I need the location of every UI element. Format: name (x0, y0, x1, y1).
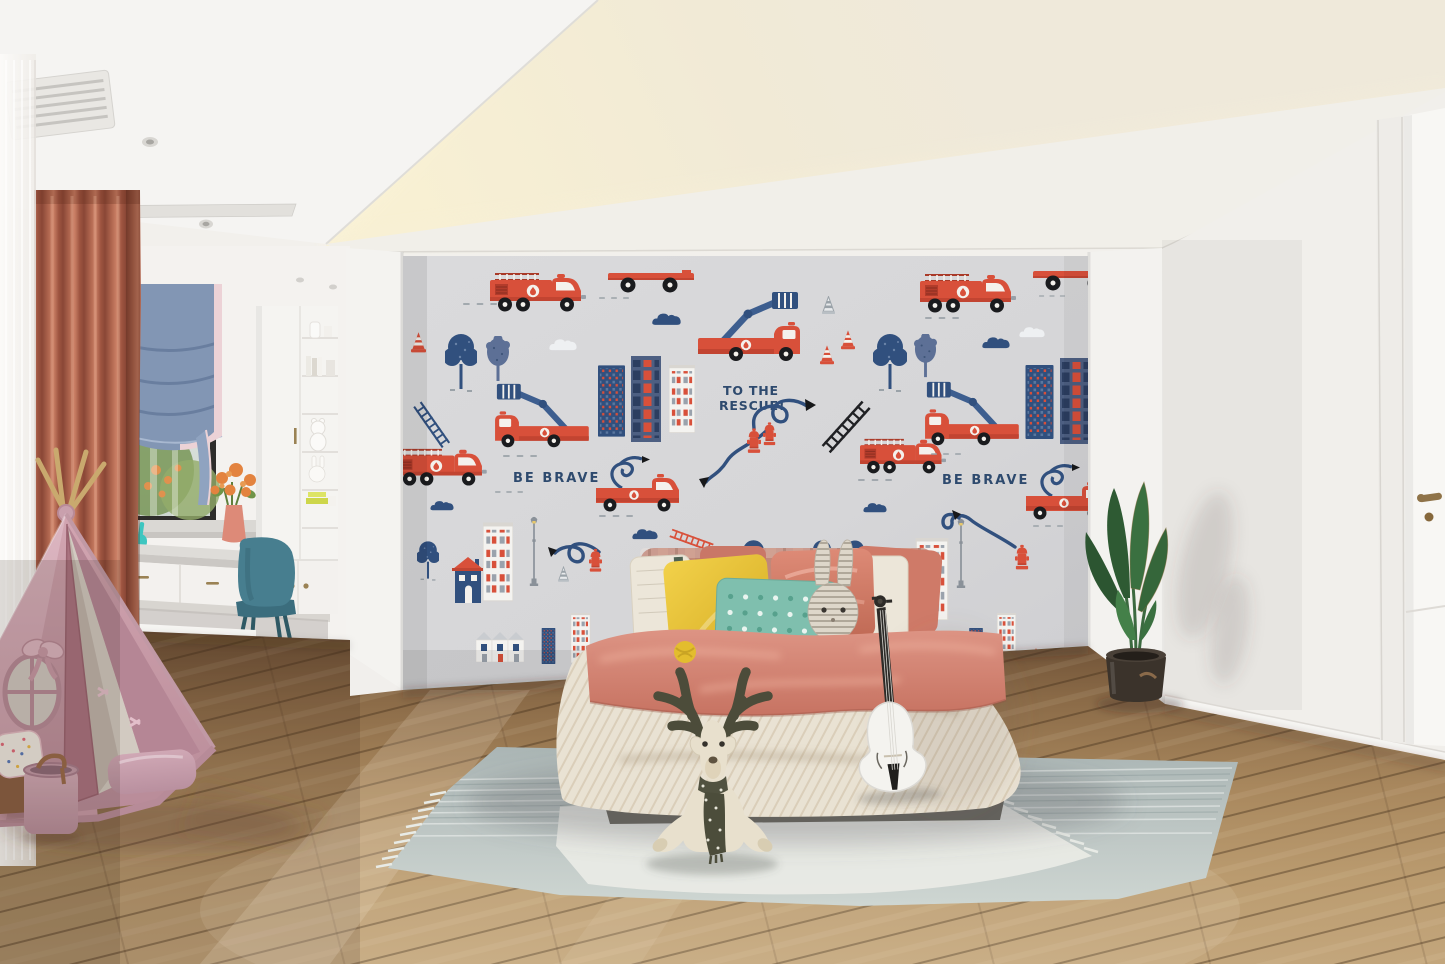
scene-canvas: TO THE RESCUE! BE BRAVE BE BRAVE (0, 0, 1445, 964)
desk-nook (104, 246, 350, 659)
mural-text-be-brave: BE BRAVE (513, 471, 600, 486)
yellow-knot-ball (674, 641, 696, 663)
alcove-column-right (1088, 248, 1164, 705)
corner-shade (0, 560, 120, 964)
mural-building (1026, 365, 1054, 439)
mural-text-be-brave: BE BRAVE (942, 473, 1029, 488)
plant-pot (1106, 648, 1166, 702)
mural-building (483, 523, 513, 601)
mural-building (631, 356, 661, 442)
play-cushion (106, 748, 197, 796)
vase (222, 505, 246, 543)
door (1404, 108, 1445, 746)
mural-building (669, 365, 695, 432)
mural-text-rescue-line1: TO THE (723, 383, 779, 398)
mural-building (598, 365, 625, 436)
pink-blanket (586, 629, 1006, 715)
bedroom-scene: TO THE RESCUE! BE BRAVE BE BRAVE (0, 0, 1445, 964)
alcove-column-left (346, 248, 403, 690)
